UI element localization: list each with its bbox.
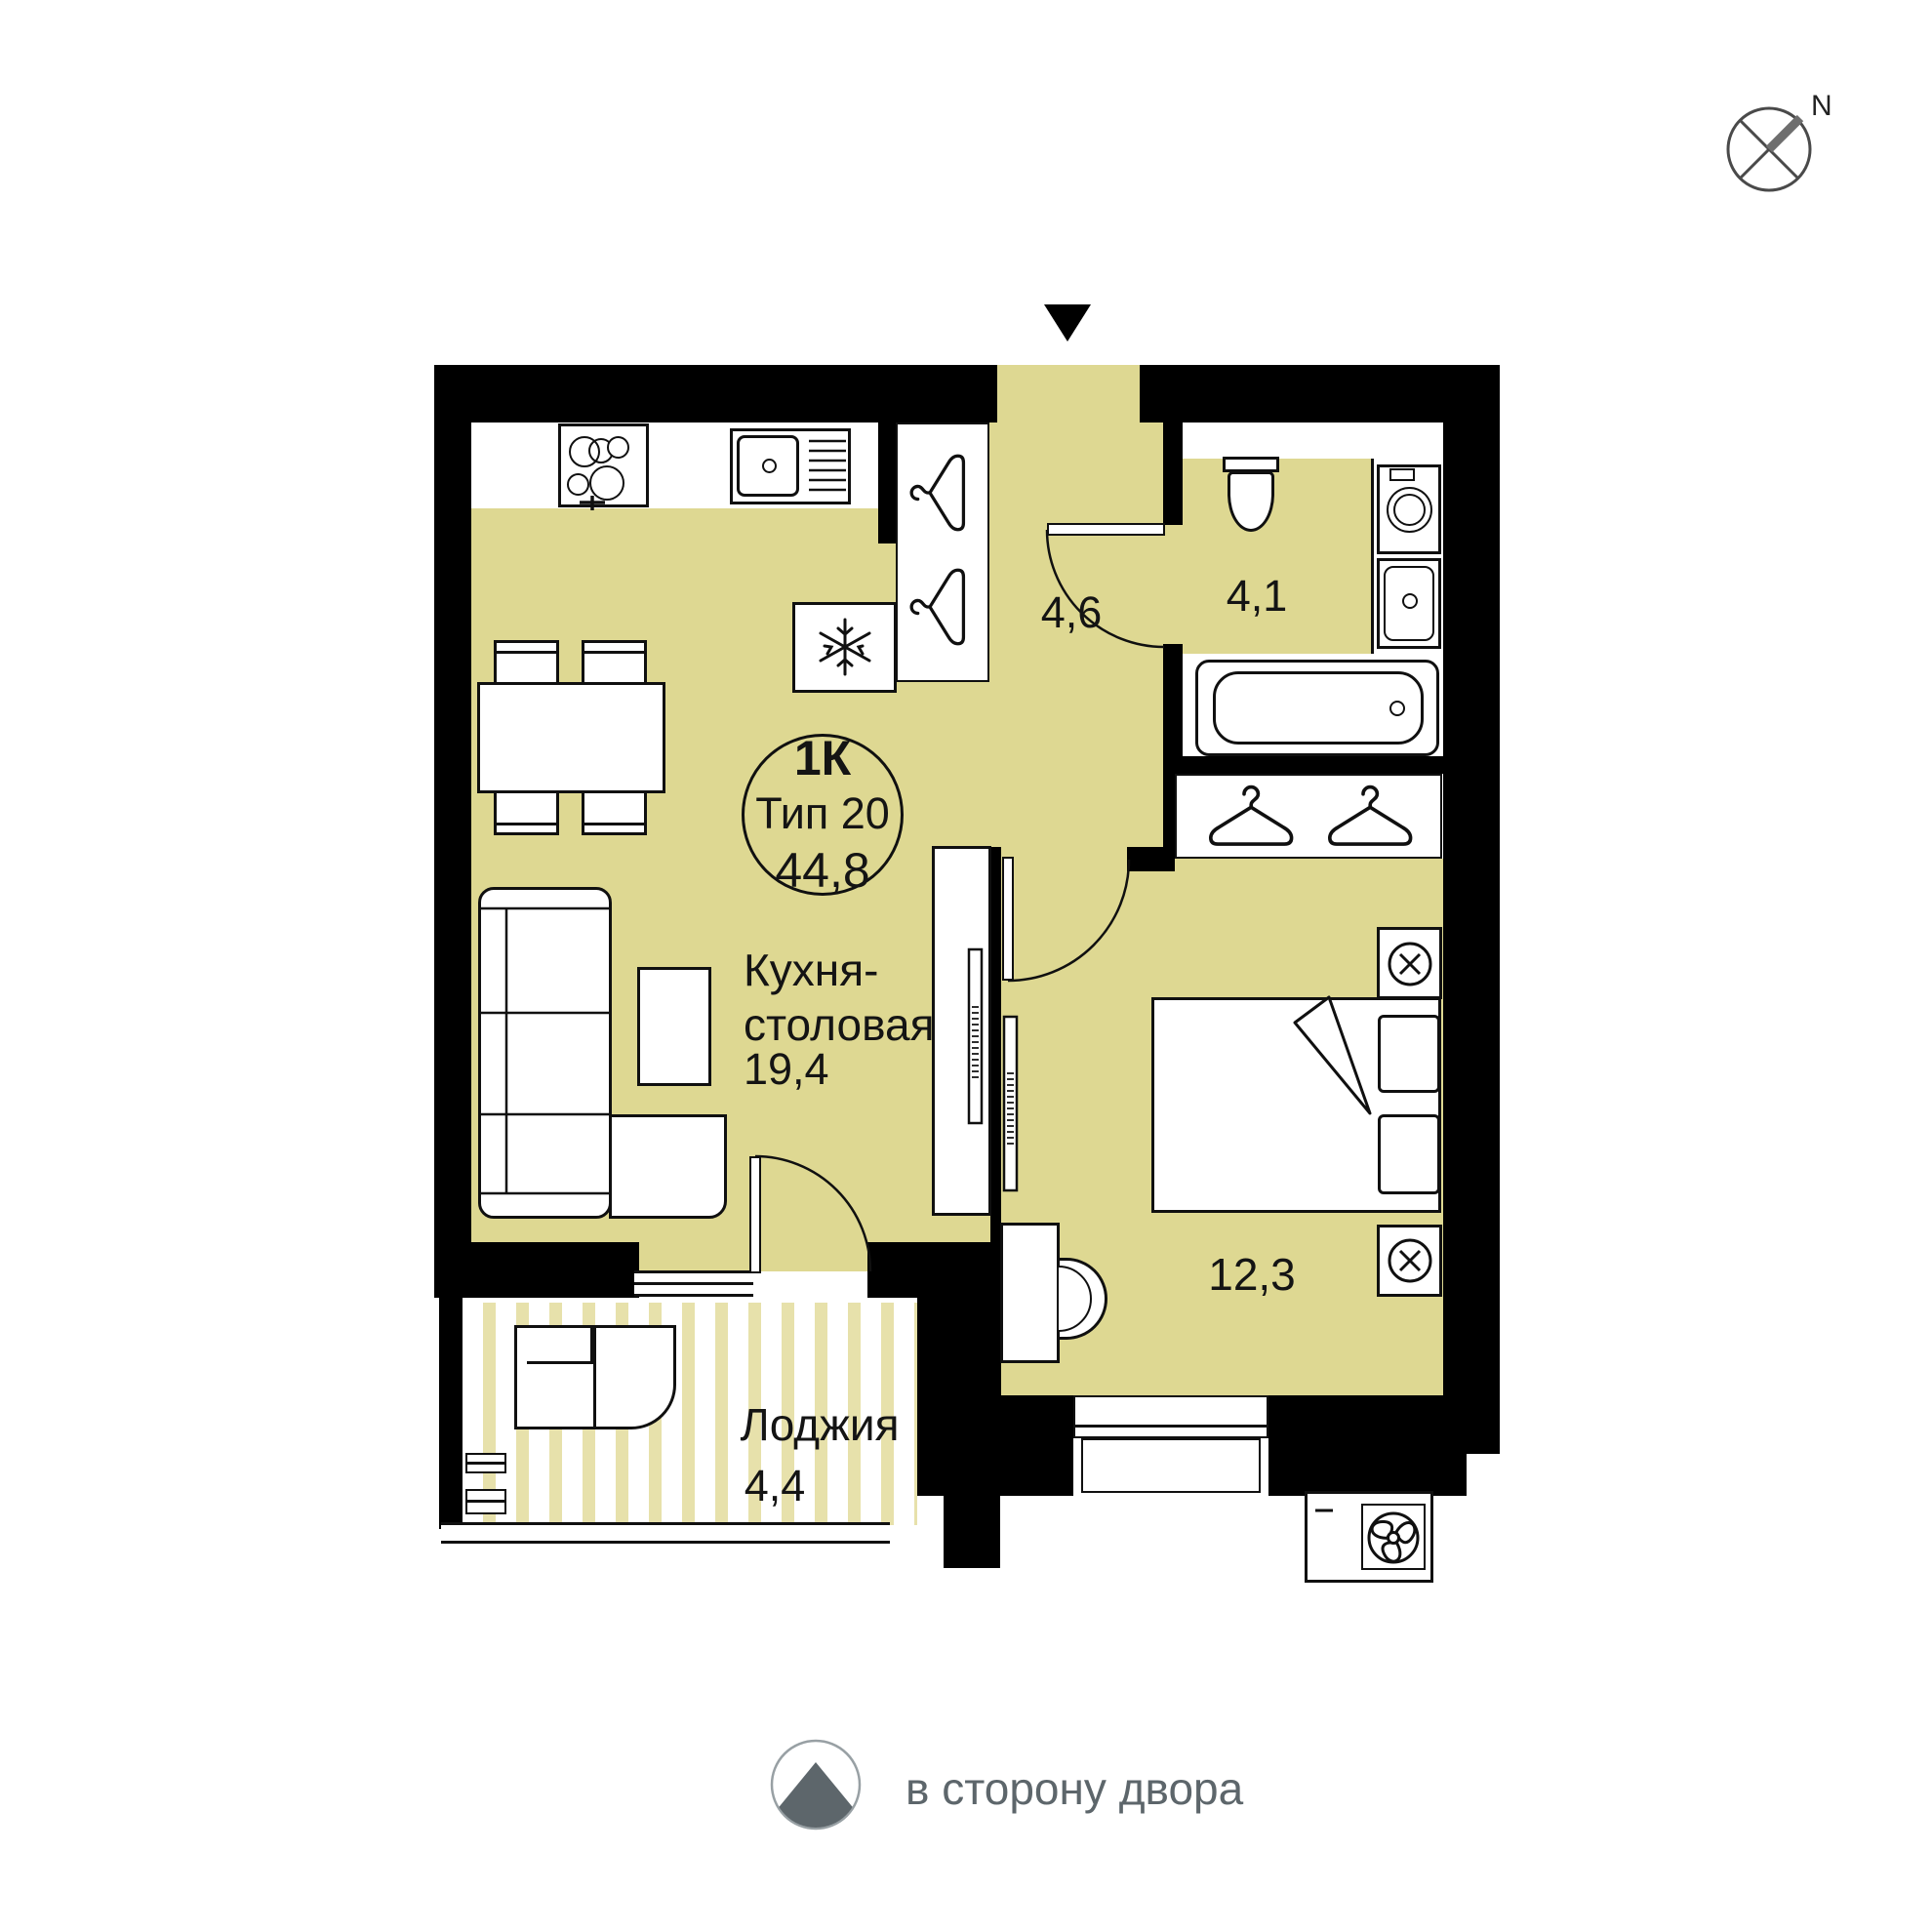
unit-badge: 1К Тип 20 44,8 [742, 734, 904, 896]
toilet-tank [1223, 457, 1279, 472]
bathroom-divider-line [1371, 459, 1374, 659]
stove-burner-4 [567, 473, 589, 496]
bathroom-door-panel [1047, 523, 1165, 536]
loggia-glazing [441, 1522, 890, 1544]
wall-top-left [434, 365, 997, 423]
chair-back-line [584, 651, 644, 654]
pillow [1378, 1015, 1440, 1093]
entrance-arrow-icon [1044, 304, 1091, 342]
chair-back-line [584, 823, 644, 825]
compass-north-label: N [1811, 90, 1832, 123]
unit-total-area: 44,8 [775, 843, 869, 898]
bathtub-drain [1389, 701, 1405, 716]
hall-closet [896, 423, 989, 682]
stove-burner-5 [589, 465, 624, 501]
loggia-area: 4,4 [726, 1461, 824, 1511]
fridge [792, 602, 897, 693]
courtyard-arrow-icon [753, 1741, 878, 1838]
stove-burner-3 [607, 436, 629, 459]
coffee-table [637, 967, 711, 1086]
wall-bedroom-bottom-left [1000, 1395, 1073, 1496]
wall-bath-band-ext [1163, 774, 1175, 859]
dining-chair [582, 790, 647, 835]
bedroom-window-line [1073, 1425, 1268, 1428]
loggia-shelf-line [465, 1462, 506, 1465]
loggia-counter-divider [593, 1325, 596, 1429]
bathroom-top-strip [1183, 423, 1443, 459]
pillow [1378, 1114, 1440, 1194]
desk [1000, 1223, 1060, 1363]
loggia-shelf-line [465, 1500, 506, 1503]
wall-loggia-left [439, 1298, 463, 1529]
bedroom-area: 12,3 [1193, 1248, 1310, 1301]
tall-cabinet [932, 846, 991, 1216]
floor-plan-canvas: 1К Тип 20 44,8 Кухня- столовая 19,4 4,6 … [0, 0, 1932, 1932]
unit-rooms: 1К [794, 732, 851, 785]
bedroom-window-sill [1081, 1438, 1261, 1493]
dining-table [477, 682, 665, 793]
kitchen-sink-drain [762, 459, 777, 473]
wall-top-right [1140, 365, 1500, 423]
wall-bath-top [1163, 422, 1183, 525]
wall-loggia-right-lower [944, 1496, 1000, 1568]
dining-chair [494, 790, 559, 835]
loggia-counter-step [527, 1325, 593, 1364]
chair-back-line [497, 823, 556, 825]
bathroom-area: 4,1 [1208, 571, 1306, 622]
wall-left [434, 365, 471, 1298]
chair-back-line [497, 651, 556, 654]
balcony-door-panel [749, 1156, 761, 1273]
wall-bath-band [1163, 756, 1443, 774]
wall-kitchen-loggia [434, 1242, 639, 1298]
kitchen-label: Кухня- столовая [744, 943, 934, 1052]
bathroom-floor [1183, 459, 1371, 662]
hallway-area: 4,6 [1023, 587, 1120, 638]
sofa-body [478, 887, 612, 1219]
washing-machine-drum-inner [1393, 494, 1426, 526]
wall-loggia-right [917, 1298, 1000, 1496]
wall-balcony-right-stub [867, 1242, 1000, 1298]
wall-closet-stub [878, 423, 896, 543]
unit-type: Тип 20 [755, 788, 890, 839]
wall-right [1443, 423, 1500, 1454]
wall-bedroom-door-stub [1127, 847, 1175, 871]
wall-bath-bottom [1163, 644, 1183, 756]
kitchen-label-line1: Кухня- [744, 943, 934, 997]
ac-unit-inner [1361, 1504, 1426, 1570]
kitchen-area: 19,4 [744, 1044, 829, 1095]
nightstand [1377, 1225, 1442, 1297]
bedroom-door-panel [1002, 857, 1014, 981]
north-compass-icon [1728, 108, 1810, 190]
nightstand [1377, 927, 1442, 999]
bathroom-sink-drain [1402, 593, 1418, 609]
washing-machine-drawer [1389, 468, 1415, 481]
courtyard-legend-text: в сторону двора [906, 1762, 1243, 1815]
loggia-label: Лоджия [722, 1398, 917, 1451]
dining-chair [582, 640, 647, 685]
dining-chair [494, 640, 559, 685]
sofa-chaise [609, 1114, 727, 1219]
bedroom-wardrobe [1175, 774, 1442, 859]
bedroom-window [1073, 1395, 1268, 1438]
wall-bedroom-bottom-right [1268, 1395, 1467, 1496]
balcony-threshold-line [634, 1282, 753, 1285]
